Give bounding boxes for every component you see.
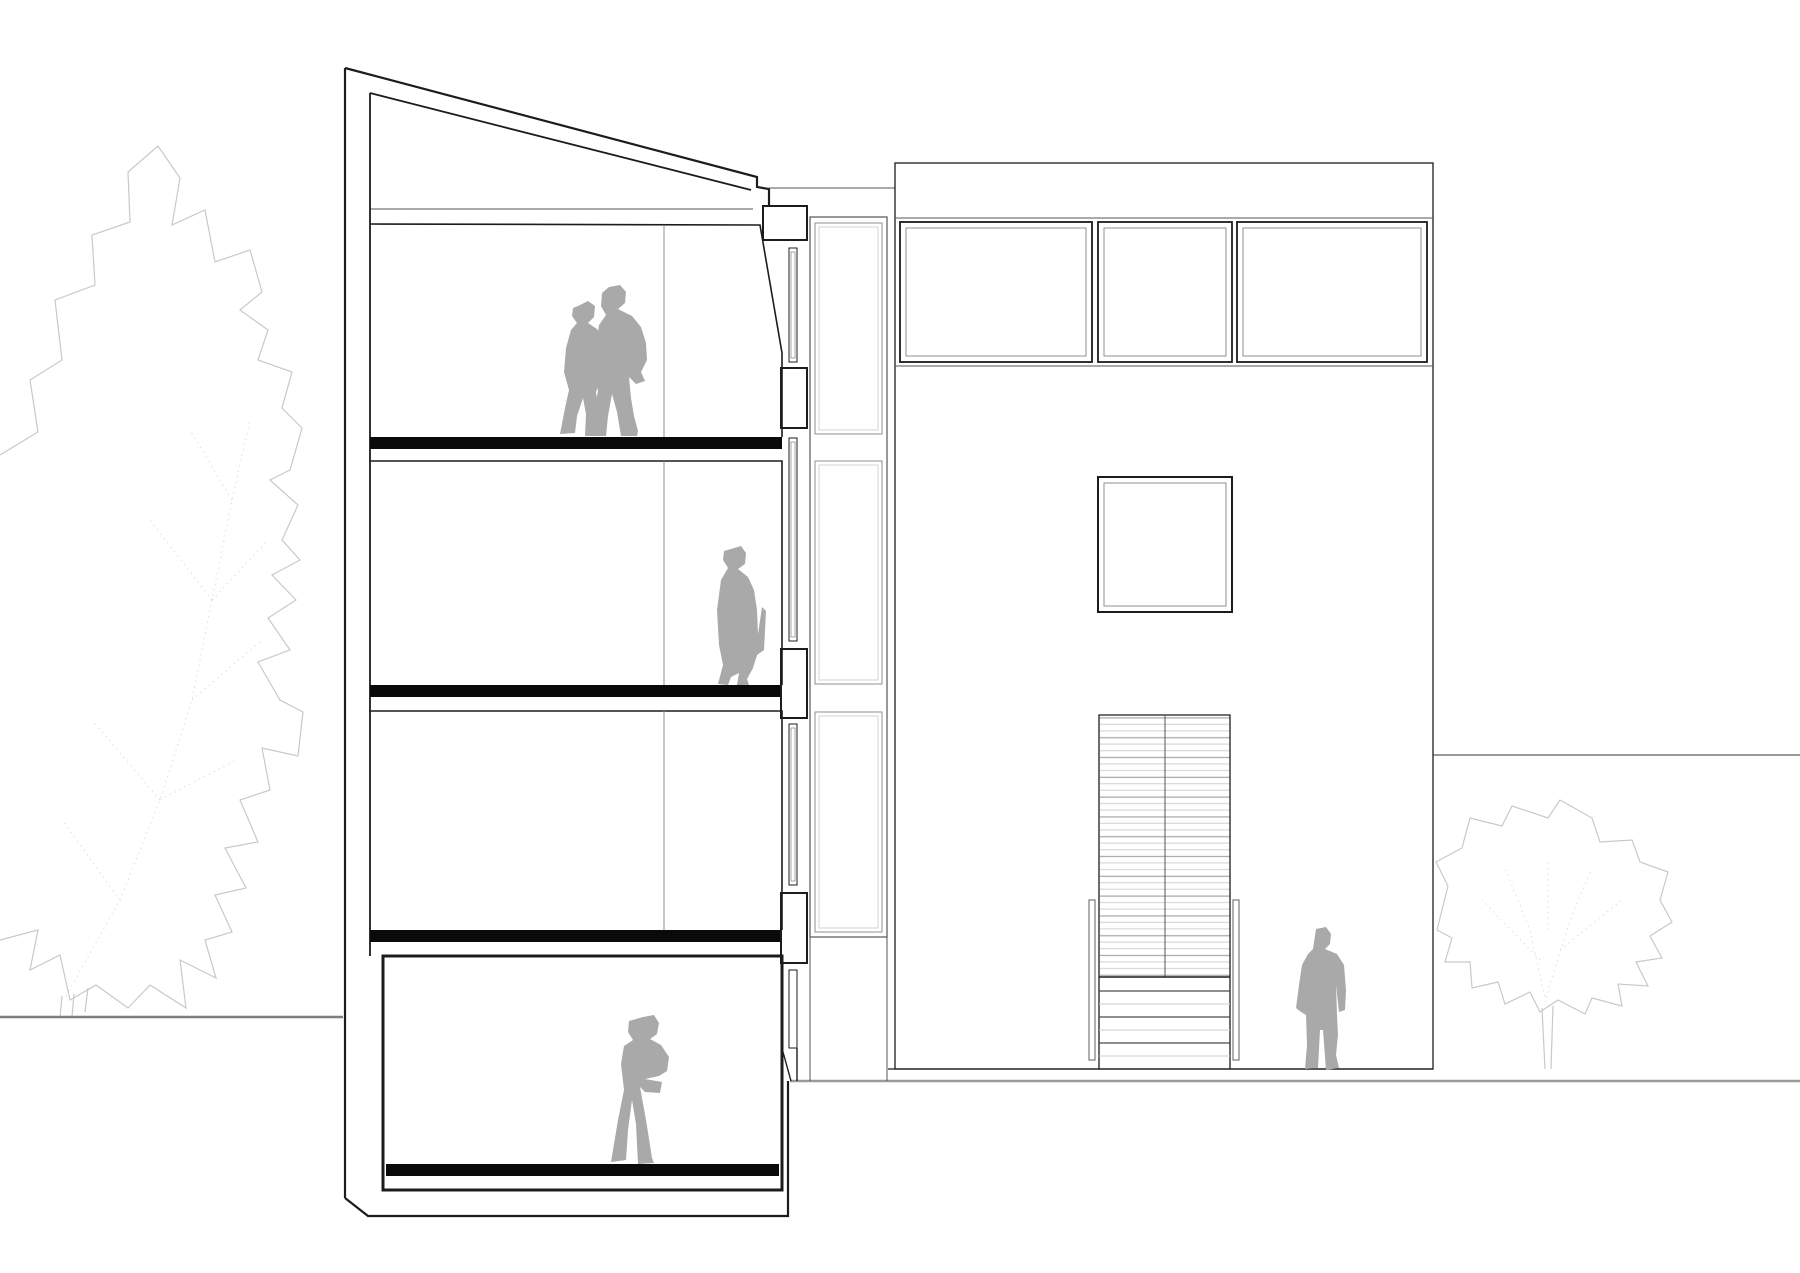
- stair-strip-panel-2: [815, 461, 882, 684]
- architectural-drawing: [0, 0, 1800, 1273]
- left-tree: [0, 146, 303, 1017]
- stair-strip-panel-1: [815, 223, 882, 434]
- section-roof: [345, 68, 895, 240]
- floor-2-room-outline: [370, 711, 782, 930]
- drawing-canvas: [0, 0, 1800, 1273]
- terrain: [0, 755, 1800, 1081]
- window-slot-a: [789, 248, 797, 362]
- section-right-wall-zone: [781, 248, 807, 1081]
- floor-4-slab: [370, 437, 782, 449]
- ground-floor: [383, 956, 782, 1190]
- clerestory-window-2: [1098, 222, 1232, 362]
- left-tree-canopy-outline: [0, 146, 303, 1008]
- roof-outer-line: [345, 68, 769, 206]
- clerestory-window-1: [900, 222, 1092, 362]
- floor-3-slab: [370, 685, 782, 697]
- stair-strip-panel-3: [815, 712, 882, 932]
- elevation-building: [895, 163, 1433, 1069]
- right-tree-branches: [1482, 860, 1622, 1002]
- wall-box-2: [781, 649, 807, 718]
- section-building: [345, 68, 895, 1216]
- floor-3-room-outline: [370, 461, 782, 685]
- wall-box-1: [781, 368, 807, 428]
- right-tree: [1436, 800, 1672, 1069]
- entrance-stair: [1089, 715, 1239, 1069]
- base-wall-cut: [783, 1048, 797, 1081]
- floor-2: [370, 711, 782, 942]
- figure-man-elevation: [1296, 927, 1346, 1070]
- clerestory-window-3: [1237, 222, 1427, 362]
- right-tree-canopy-outline: [1436, 800, 1672, 1014]
- eaves-box: [763, 206, 807, 240]
- ground-floor-room: [383, 956, 782, 1190]
- handrail-left: [1089, 900, 1095, 1060]
- ground-floor-slab: [386, 1164, 779, 1176]
- stair-strip-base-walls: [810, 937, 887, 1081]
- figure-couple-top-floor: [560, 285, 647, 436]
- left-tree-branches: [62, 420, 268, 996]
- right-tree-trunk: [1542, 1006, 1553, 1069]
- stair-strip-frame: [810, 217, 887, 937]
- square-window: [1098, 477, 1232, 612]
- window-slot-d: [789, 970, 797, 1048]
- window-slot-c: [789, 724, 797, 885]
- wall-box-3: [781, 893, 807, 963]
- handrail-right: [1233, 900, 1239, 1060]
- floor-2-slab: [370, 930, 782, 942]
- figure-woman-floor-3: [717, 546, 766, 685]
- glazed-stair-strip: [810, 217, 887, 1081]
- window-slot-b: [789, 438, 797, 641]
- roof-inner-line: [370, 93, 751, 190]
- floor-3: [370, 461, 782, 697]
- lower-stair-steps: [1099, 991, 1230, 1056]
